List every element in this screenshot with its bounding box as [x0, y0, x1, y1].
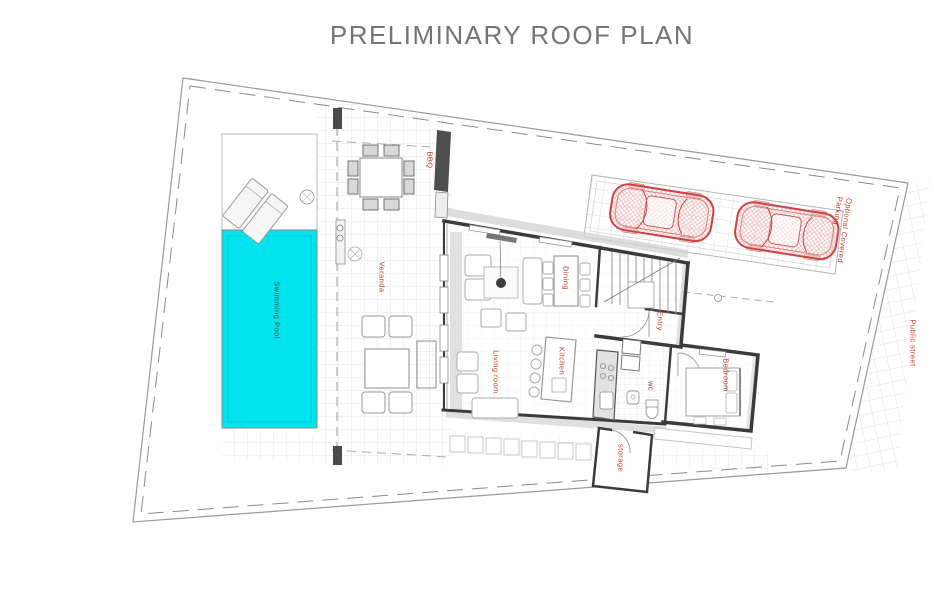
dining-furniture: [543, 256, 590, 307]
swimming-pool: [222, 230, 317, 428]
street-paving: [846, 181, 930, 474]
roof-plan-drawing: [0, 0, 934, 615]
bedroom-furniture: [686, 368, 740, 425]
roof-plan-canvas: PRELIMINARY ROOF PLAN: [0, 0, 934, 615]
roof-post-bottom: [333, 446, 342, 465]
storage-room: [593, 428, 652, 492]
roof-post-top: [333, 108, 342, 129]
